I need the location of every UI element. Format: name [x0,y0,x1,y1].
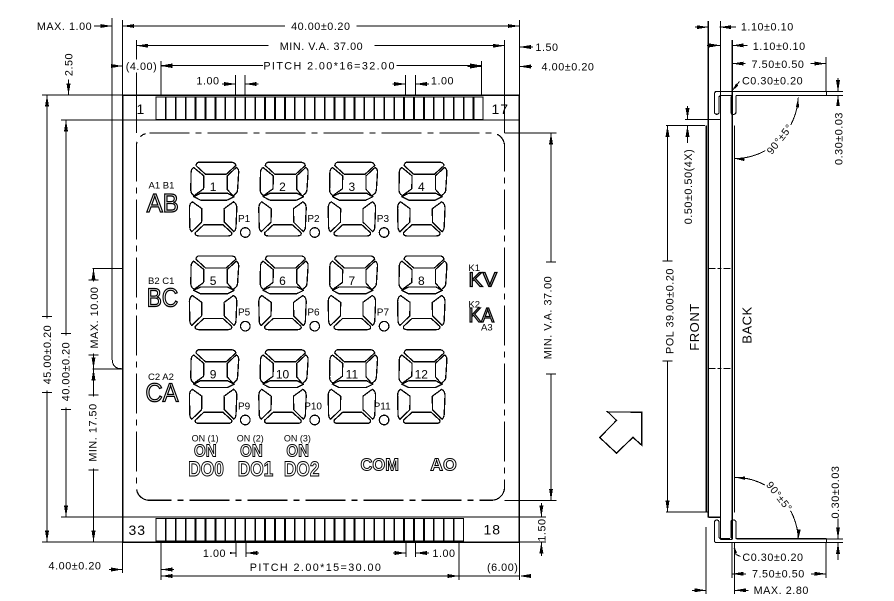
svg-text:10: 10 [276,368,290,382]
svg-text:40.00±0.20: 40.00±0.20 [291,21,350,33]
svg-text:P7: P7 [377,308,390,319]
svg-text:1.10±0.10: 1.10±0.10 [753,41,806,53]
svg-text:MAX. 1.00: MAX. 1.00 [37,21,92,33]
svg-text:8: 8 [418,274,425,288]
svg-text:BACK: BACK [739,306,754,343]
svg-text:FRONT: FRONT [687,303,702,351]
svg-text:P11: P11 [374,402,391,413]
svg-text:11: 11 [346,368,359,382]
svg-text:12: 12 [415,368,429,382]
svg-text:45.00±0.20: 45.00±0.20 [42,325,54,384]
svg-text:MIN. V.A. 37.00: MIN. V.A. 37.00 [542,276,554,359]
svg-text:0.30±0.03: 0.30±0.03 [833,112,845,165]
svg-text:(6.00): (6.00) [487,562,519,574]
svg-text:17: 17 [492,101,510,117]
svg-text:KV: KV [469,269,498,291]
svg-text:3: 3 [349,180,356,194]
svg-text:P9: P9 [238,402,251,413]
svg-text:4.00±0.20: 4.00±0.20 [49,560,102,572]
svg-text:COM: COM [361,454,400,474]
svg-text:MIN. V.A. 37.00: MIN. V.A. 37.00 [280,41,363,53]
svg-text:DO0: DO0 [188,458,224,481]
svg-text:7.50±0.50: 7.50±0.50 [752,59,805,71]
svg-text:1.50: 1.50 [536,518,548,541]
svg-text:0.30±0.03: 0.30±0.03 [830,466,842,519]
svg-text:P10: P10 [304,402,322,413]
svg-text:7: 7 [349,274,356,288]
svg-text:5: 5 [210,274,217,288]
svg-text:A3: A3 [481,322,493,333]
svg-text:1.00: 1.00 [203,548,226,560]
svg-text:MIN. 17.50: MIN. 17.50 [87,403,99,461]
svg-text:6: 6 [279,274,286,288]
svg-text:AB: AB [147,188,179,218]
svg-text:4.00±0.20: 4.00±0.20 [542,61,595,73]
svg-text:P3: P3 [377,214,390,225]
svg-text:90°±5°: 90°±5° [763,479,794,514]
svg-text:33: 33 [129,522,147,538]
svg-text:MAX. 10.00: MAX. 10.00 [89,287,101,349]
svg-text:C0.30±0.20: C0.30±0.20 [742,75,803,87]
svg-text:1.00: 1.00 [431,76,454,88]
svg-text:0.50±0.50(4X): 0.50±0.50(4X) [683,149,695,225]
svg-text:P5: P5 [238,308,251,319]
svg-text:1.00: 1.00 [432,548,455,560]
svg-text:40.00±0.20: 40.00±0.20 [60,342,72,401]
svg-text:4: 4 [418,180,425,194]
svg-text:POL 39.00±0.20: POL 39.00±0.20 [664,268,676,354]
svg-text:(4.00): (4.00) [126,61,158,73]
svg-text:18: 18 [484,522,502,538]
svg-text:1.00: 1.00 [196,76,219,88]
svg-text:DO1: DO1 [238,458,274,481]
svg-text:1.10±0.10: 1.10±0.10 [741,22,794,34]
svg-text:9: 9 [210,368,217,382]
svg-text:P1: P1 [238,214,251,225]
svg-text:CA: CA [146,378,180,408]
svg-text:P6: P6 [307,308,320,319]
svg-text:1.50: 1.50 [535,42,558,54]
svg-text:2: 2 [279,180,286,194]
svg-text:PITCH 2.00*16=32.00: PITCH 2.00*16=32.00 [263,60,396,72]
svg-text:MAX. 2.80: MAX. 2.80 [754,585,809,597]
svg-text:AO: AO [430,454,457,474]
svg-text:90°±5°: 90°±5° [765,122,796,157]
svg-text:PITCH 2.00*15=30.00: PITCH 2.00*15=30.00 [250,562,383,574]
svg-text:2.50: 2.50 [63,53,75,76]
svg-text:1: 1 [210,180,217,194]
svg-text:C0.30±0.20: C0.30±0.20 [742,552,803,564]
svg-text:DO2: DO2 [284,458,320,481]
svg-text:BC: BC [147,282,179,312]
svg-text:P2: P2 [307,214,320,225]
svg-text:1: 1 [137,101,145,117]
svg-text:7.50±0.50: 7.50±0.50 [752,569,805,581]
